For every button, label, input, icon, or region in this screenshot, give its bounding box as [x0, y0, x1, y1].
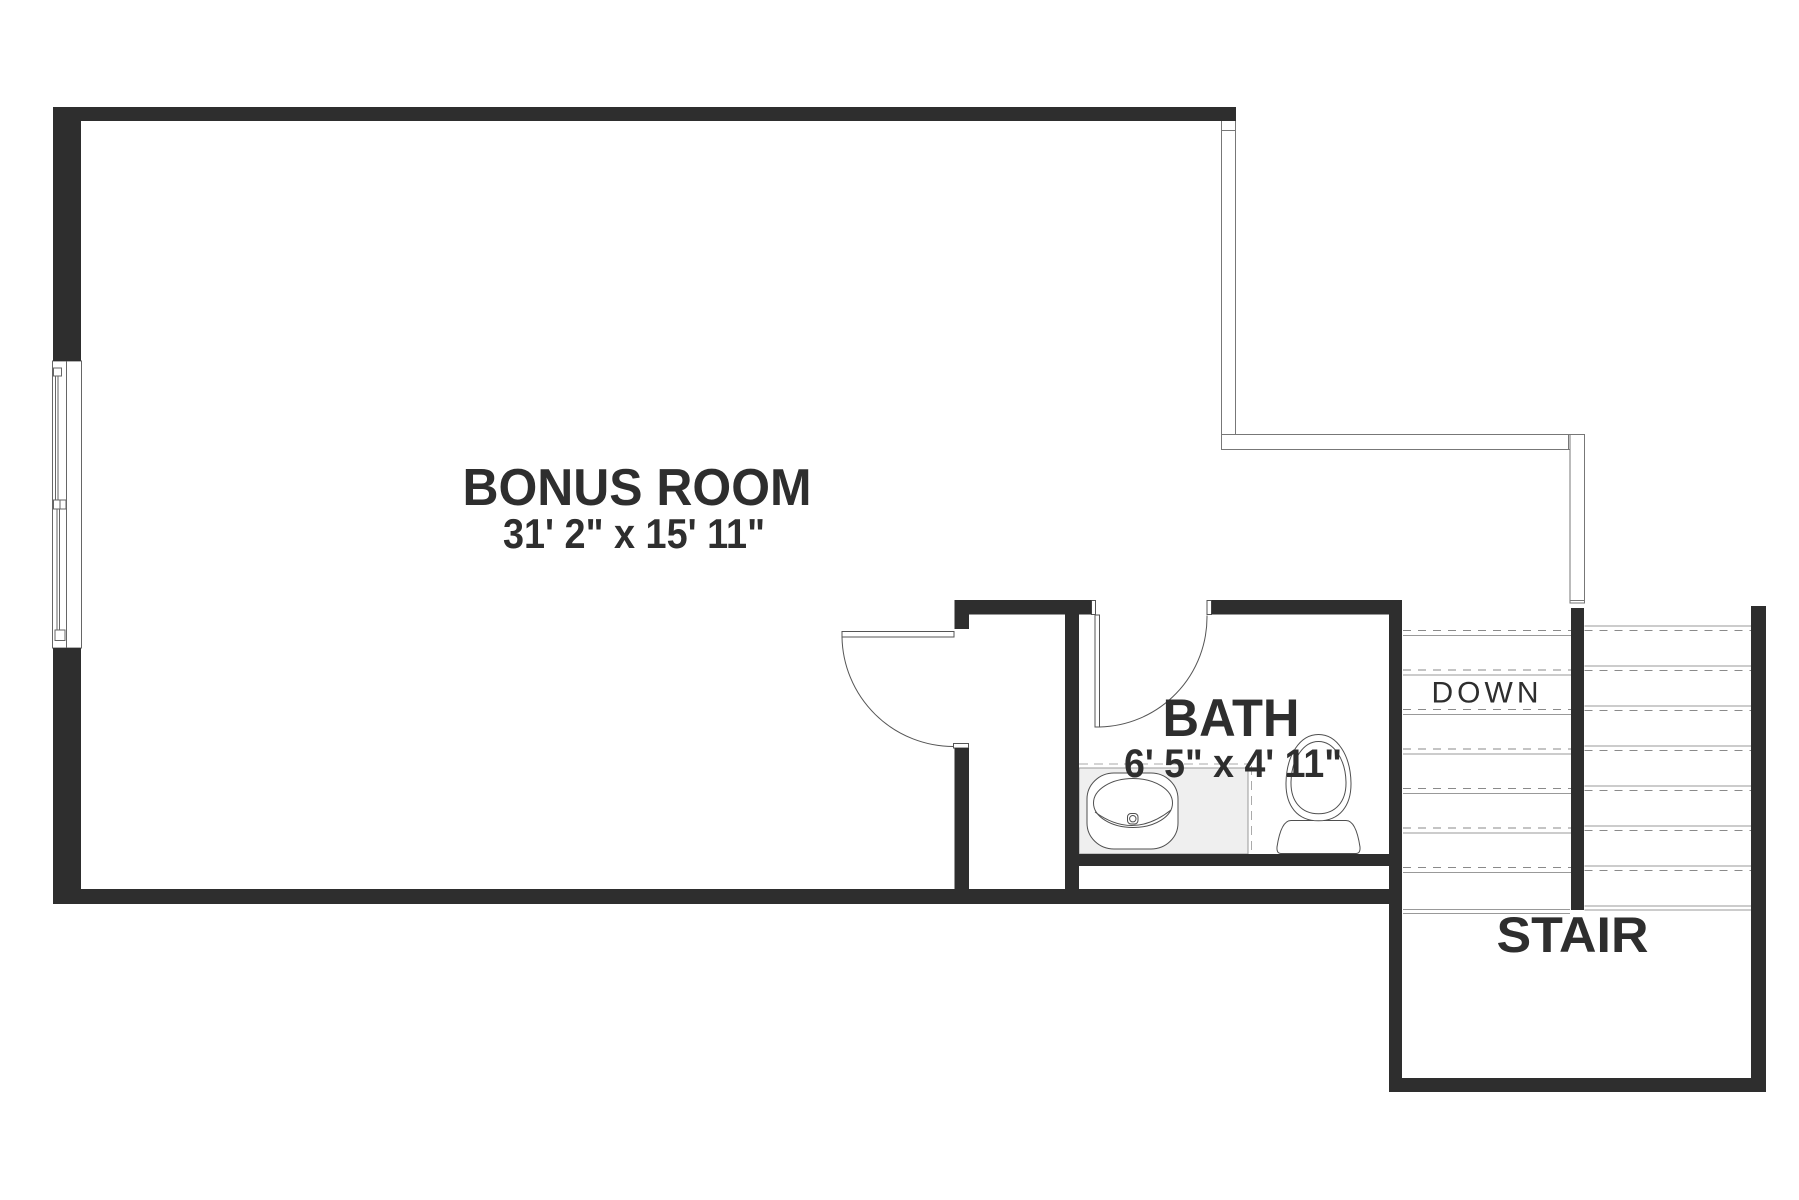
svg-text:STAIR: STAIR	[1497, 907, 1649, 963]
svg-text:BONUS ROOM: BONUS ROOM	[463, 459, 812, 517]
svg-text:31' 2" x 15' 11": 31' 2" x 15' 11"	[503, 510, 765, 557]
svg-text:6' 5" x 4' 11": 6' 5" x 4' 11"	[1124, 742, 1342, 786]
svg-text:BATH: BATH	[1163, 689, 1300, 748]
svg-text:DOWN: DOWN	[1432, 677, 1539, 710]
